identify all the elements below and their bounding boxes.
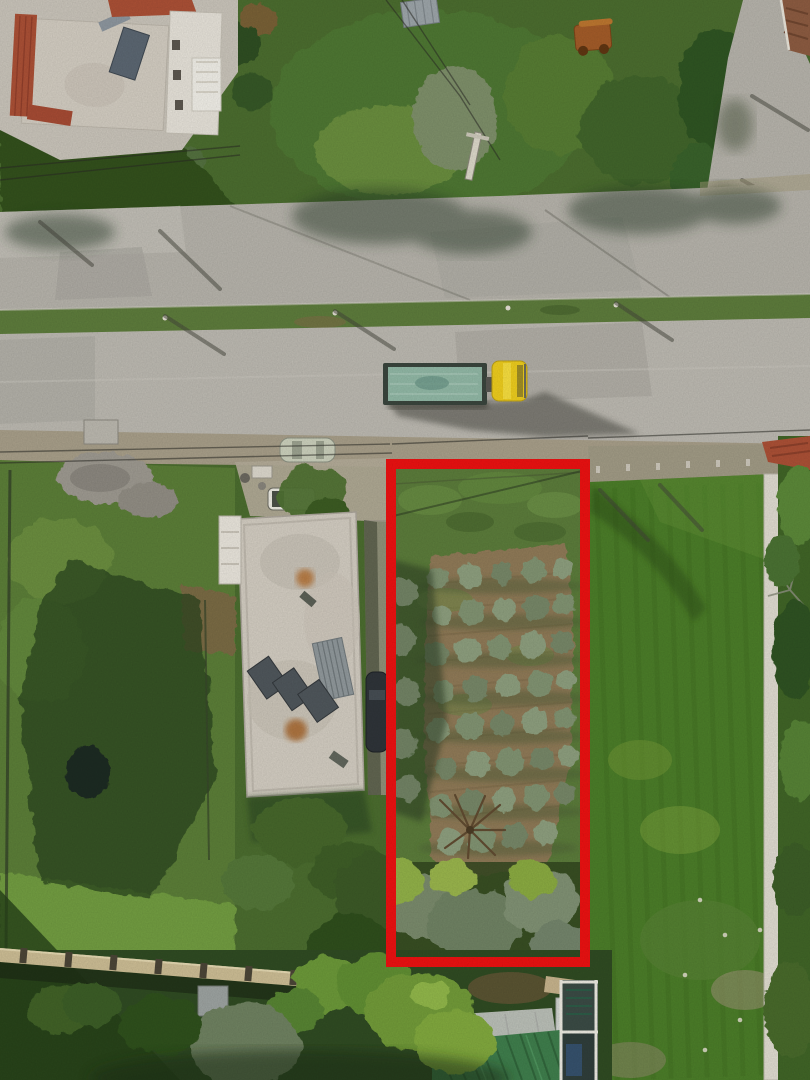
- grain-overlay: [0, 0, 810, 1080]
- aerial-photo: [0, 0, 810, 1080]
